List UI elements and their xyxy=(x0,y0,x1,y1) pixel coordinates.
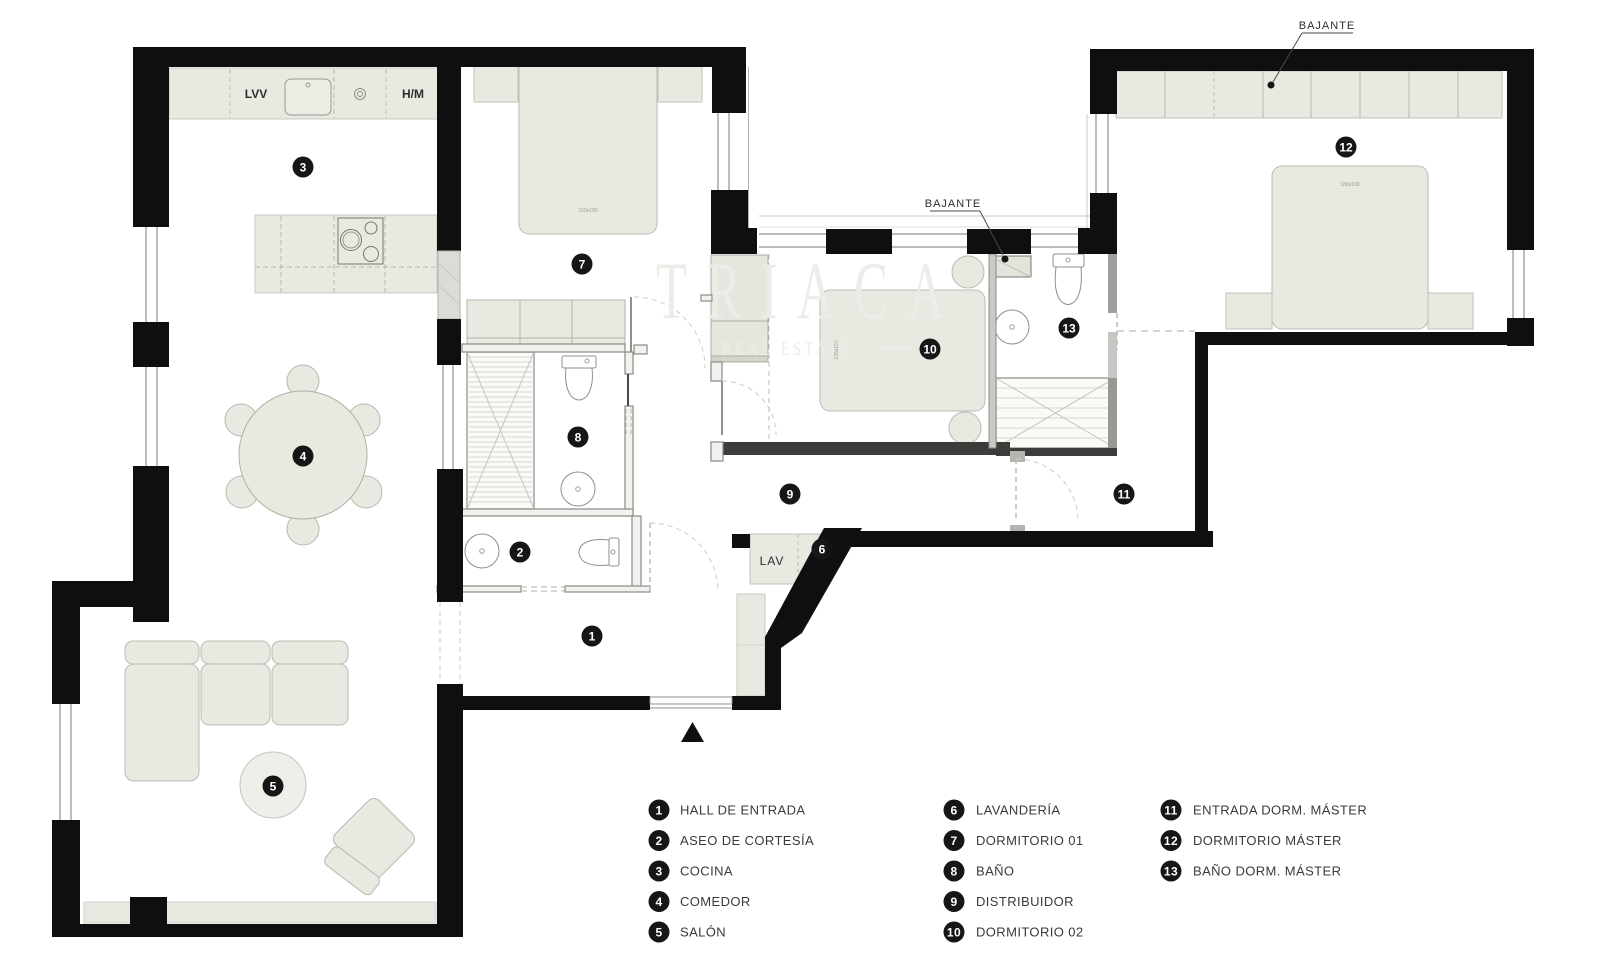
svg-text:2: 2 xyxy=(517,546,524,560)
svg-text:LVV: LVV xyxy=(245,87,267,101)
svg-text:150x190: 150x190 xyxy=(578,208,597,214)
svg-text:5: 5 xyxy=(655,926,662,940)
svg-text:3: 3 xyxy=(300,161,307,175)
svg-text:9: 9 xyxy=(950,895,957,909)
svg-text:1: 1 xyxy=(589,630,596,644)
svg-text:7: 7 xyxy=(950,834,957,848)
svg-text:4: 4 xyxy=(300,450,307,464)
svg-text:11: 11 xyxy=(1164,804,1178,818)
svg-text:6: 6 xyxy=(950,804,957,818)
svg-text:ENTRADA DORM. MÁSTER: ENTRADA DORM. MÁSTER xyxy=(1193,803,1367,818)
svg-text:BAJANTE: BAJANTE xyxy=(925,198,982,210)
svg-text:COCINA: COCINA xyxy=(680,864,733,879)
svg-text:4: 4 xyxy=(655,895,662,909)
svg-text:9: 9 xyxy=(787,488,794,502)
svg-text:BAJANTE: BAJANTE xyxy=(1299,20,1356,32)
svg-text:12: 12 xyxy=(1164,834,1178,848)
svg-text:DORMITORIO MÁSTER: DORMITORIO MÁSTER xyxy=(1193,833,1342,848)
svg-text:BAÑO DORM. MÁSTER: BAÑO DORM. MÁSTER xyxy=(1193,864,1341,879)
svg-text:5: 5 xyxy=(270,780,277,794)
svg-text:DISTRIBUIDOR: DISTRIBUIDOR xyxy=(976,894,1074,909)
svg-text:180x190: 180x190 xyxy=(1340,182,1359,188)
svg-text:DORMITORIO 02: DORMITORIO 02 xyxy=(976,925,1084,940)
svg-text:SALÓN: SALÓN xyxy=(680,925,726,940)
svg-text:8: 8 xyxy=(950,865,957,879)
svg-text:2: 2 xyxy=(655,834,662,848)
svg-text:13: 13 xyxy=(1164,865,1178,879)
svg-text:12: 12 xyxy=(1339,141,1353,155)
svg-text:3: 3 xyxy=(655,865,662,879)
svg-text:BAÑO: BAÑO xyxy=(976,864,1014,879)
svg-text:7: 7 xyxy=(579,258,586,272)
svg-text:DORMITORIO 01: DORMITORIO 01 xyxy=(976,833,1084,848)
svg-text:HALL DE ENTRADA: HALL DE ENTRADA xyxy=(680,803,805,818)
svg-text:8: 8 xyxy=(575,431,582,445)
svg-text:ASEO DE CORTESÍA: ASEO DE CORTESÍA xyxy=(680,833,814,848)
svg-text:TRIACA: TRIACA xyxy=(656,245,964,336)
svg-text:10: 10 xyxy=(923,343,937,357)
svg-text:H/M: H/M xyxy=(402,87,424,101)
svg-text:COMEDOR: COMEDOR xyxy=(680,894,751,909)
svg-text:13: 13 xyxy=(1062,322,1076,336)
svg-text:LAV: LAV xyxy=(760,554,785,568)
svg-text:1: 1 xyxy=(655,804,662,818)
svg-text:6: 6 xyxy=(819,543,826,557)
svg-text:REAL ESTATE: REAL ESTATE xyxy=(722,337,853,360)
svg-text:11: 11 xyxy=(1118,488,1131,502)
svg-text:10: 10 xyxy=(947,926,961,940)
svg-text:LAVANDERÍA: LAVANDERÍA xyxy=(976,803,1060,818)
